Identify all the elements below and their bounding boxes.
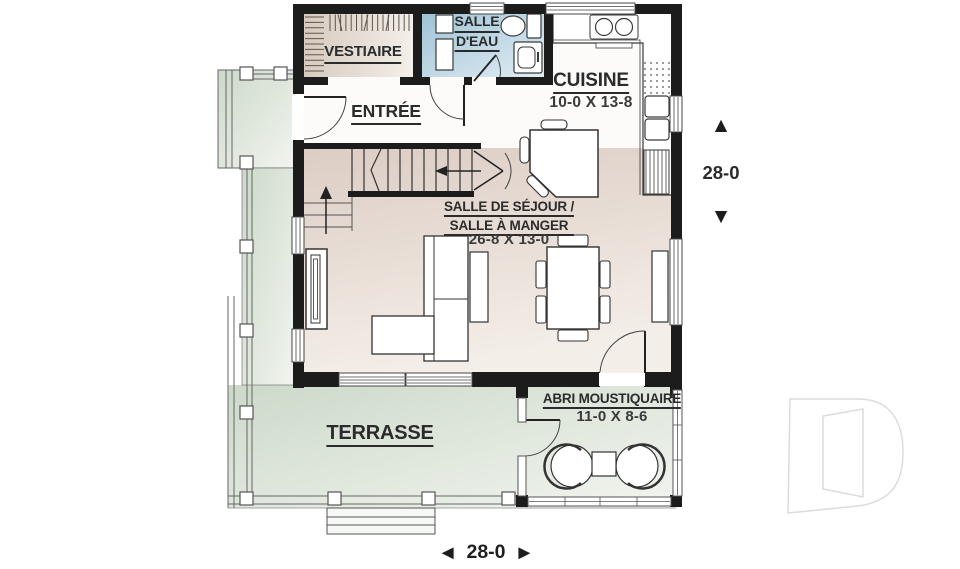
bathroom-cabinet [436,15,453,33]
horizontal-dimension: ◄ 28-0 ► [420,541,552,564]
bathroom-sink [514,42,542,73]
window [292,217,304,254]
patio-chair [544,444,593,488]
porch-post [670,495,682,507]
dishwasher [644,62,670,94]
d-logo-watermark [788,399,903,513]
window [670,239,682,325]
room-label-vestiaire: VESTIAIRE [324,44,401,64]
horizontal-dimension-value: 28-0 [466,541,505,564]
room-label-salle-deau: SALLE D'EAU [455,14,500,52]
fireplace [306,249,327,329]
patio-table [592,452,616,476]
window [546,3,635,14]
vertical-dimension: ▲ 28-0 ▼ [694,113,748,230]
patio-chair [616,444,665,488]
dining-set [536,235,610,341]
terrasse-steps [327,508,435,534]
bathroom-cabinet [436,39,453,70]
dining-table [547,247,599,329]
dining-chair [600,261,610,288]
window [339,373,405,386]
buffet [652,251,668,322]
room-size-abri-moustiquaire: 11-0 X 8-6 [576,408,647,425]
coffee-table [372,316,434,354]
room-label-abri-moustiquaire: ABRI MOUSTIQUAIRE [543,391,681,409]
kitchen-island [520,120,598,199]
kitchen-sink [590,15,638,48]
refrigerator [644,150,669,194]
room-size-cuisine: 10-0 X 13-8 [549,94,632,112]
dining-chair [536,261,546,288]
window [292,329,304,362]
porch-post [516,387,528,398]
floor-plan-drawing [0,0,960,569]
vertical-dimension-value: 28-0 [694,162,748,184]
right-arrow-icon: ► [515,542,535,564]
console-table [470,252,488,322]
floor-plan: VESTIAIRE SALLE D'EAU ENTRÉE CUISINE 10-… [0,0,960,569]
room-size-sejour: 26-8 X 13-0 [469,231,550,248]
left-arrow-icon: ◄ [438,542,458,564]
room-label-entree: ENTRÉE [351,102,421,125]
dining-chair [558,330,588,341]
dining-chair [558,235,588,246]
down-arrow-icon: ▼ [694,204,748,230]
porch-post [516,495,528,507]
room-label-cuisine: CUISINE [553,70,629,94]
up-arrow-icon: ▲ [694,113,748,139]
window [406,373,472,386]
window [670,96,682,132]
island-stool [520,137,529,163]
dining-chair [536,296,546,323]
island-stool [541,120,567,129]
room-label-terrasse: TERRASSE [326,422,433,447]
dining-chair [600,296,610,323]
